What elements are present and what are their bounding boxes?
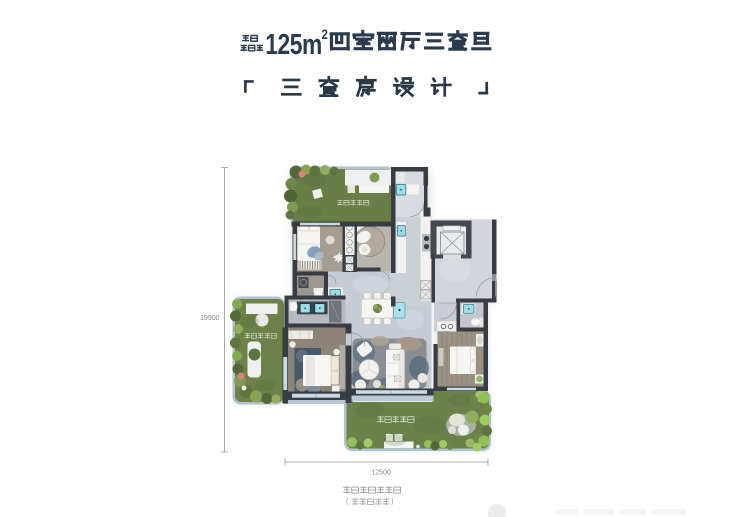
svg-text:12500: 12500 [371,470,391,477]
svg-text:125m: 125m [265,30,322,61]
svg-text:19900: 19900 [200,315,220,322]
svg-text:2: 2 [322,27,328,42]
